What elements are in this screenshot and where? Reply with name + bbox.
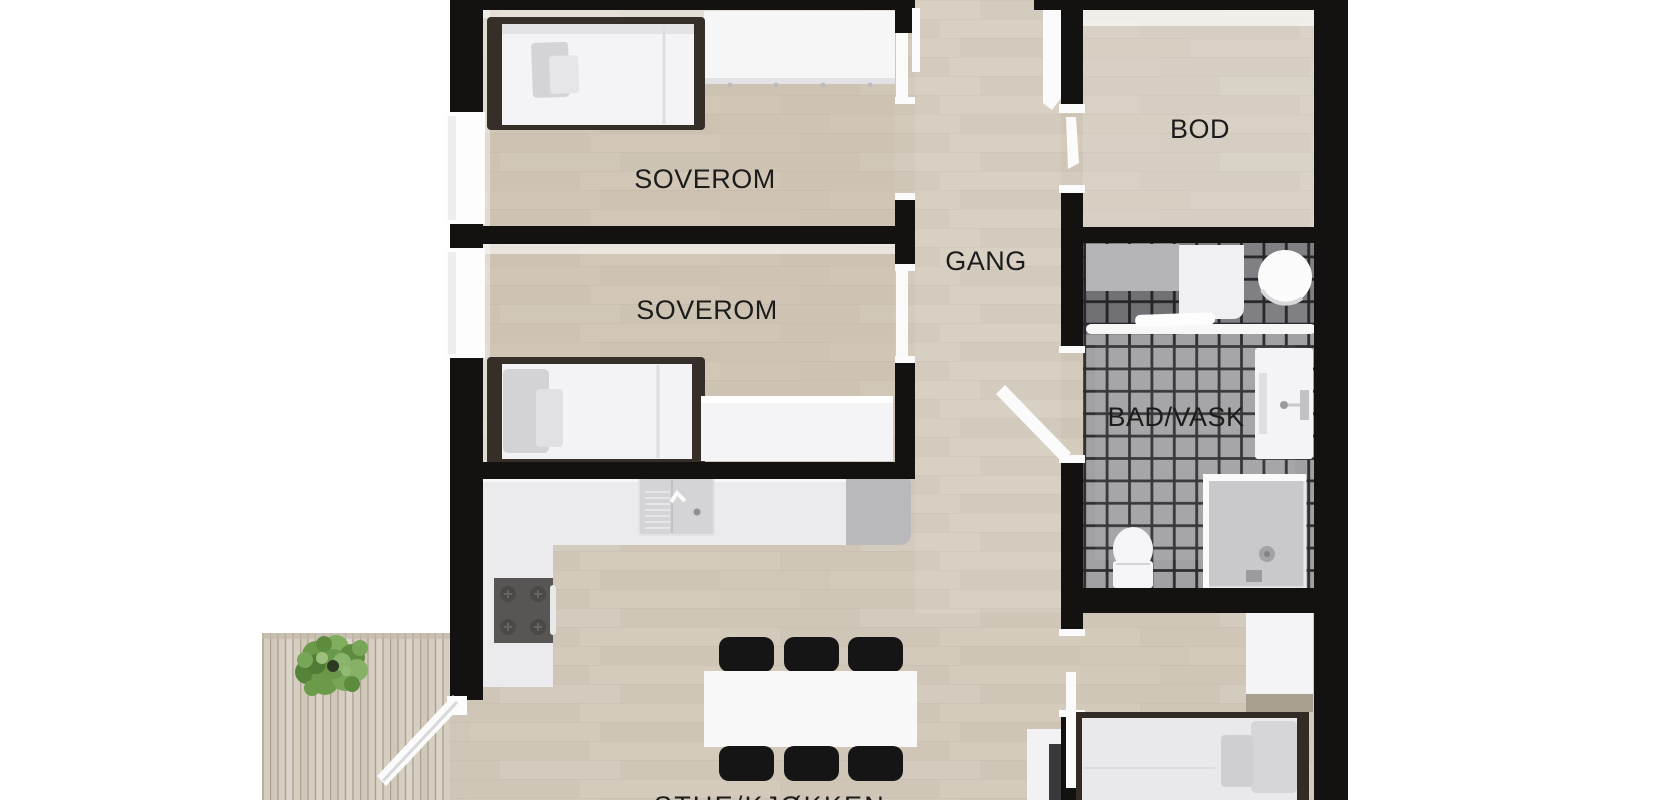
svg-text:GANG: GANG bbox=[945, 246, 1027, 276]
svg-text:BOD: BOD bbox=[1170, 114, 1230, 144]
svg-text:BAD/VASK: BAD/VASK bbox=[1107, 402, 1244, 432]
svg-text:SOVEROM: SOVEROM bbox=[634, 164, 776, 194]
svg-text:SOVEROM: SOVEROM bbox=[636, 295, 778, 325]
svg-text:STUE/KJØKKEN: STUE/KJØKKEN bbox=[654, 791, 886, 800]
